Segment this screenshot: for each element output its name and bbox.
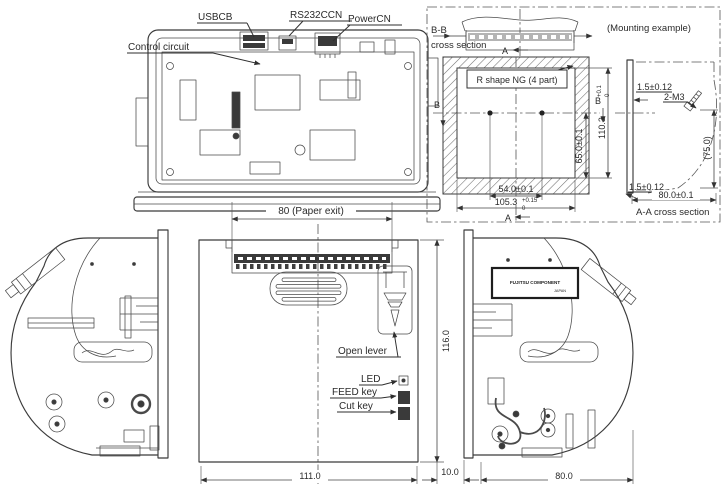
label-powercn: PowerCN xyxy=(348,14,391,25)
open-lever xyxy=(378,266,412,334)
dim-cutout-width-tol-plus: +0.15 xyxy=(522,198,538,204)
label-cut-key: Cut key xyxy=(339,401,373,412)
top-view-board xyxy=(162,52,414,180)
usb-connector xyxy=(240,32,268,50)
section-marker-b-left: B xyxy=(434,100,440,110)
dim-hole-to-bottom: 65.0±0.1 xyxy=(574,129,584,164)
dim-depth-ref: (75.0) xyxy=(702,136,712,160)
mounting-example-caption: (Mounting example) xyxy=(607,23,691,34)
section-bb-label-line2: cross section xyxy=(431,40,486,51)
panel-cutout: R shape NG (4 part) B B 65.0±0.1 110.3 +… xyxy=(433,57,612,223)
dim-cutout-width: 105.3 xyxy=(495,197,518,207)
top-view-inner-frame xyxy=(156,38,420,184)
section-aa-caption: A-A cross section xyxy=(636,207,709,218)
front-view: Open lever LED FEED key Cut key 80 (Pape… xyxy=(199,202,451,484)
cut-key-button xyxy=(398,407,410,420)
dim-width-111: 111.0 xyxy=(299,471,320,481)
nameplate-line2: JAPAN xyxy=(554,289,566,293)
left-view-bezel-plate xyxy=(158,230,168,458)
dim-cutout-height: 110.3 xyxy=(597,117,607,139)
label-led: LED xyxy=(361,374,380,385)
section-bb-view: B-B cross section A xyxy=(431,9,592,57)
label-usbcb: USBCB xyxy=(198,12,233,23)
feed-key-button xyxy=(398,391,410,404)
dim-height-116-text: 116.0 xyxy=(441,330,451,352)
mounting-hole-right xyxy=(539,110,544,115)
dim-cutout-width-tol-minus: 0 xyxy=(522,206,526,212)
label-feed-key: FEED key xyxy=(332,387,377,398)
left-view-details xyxy=(28,263,159,457)
top-view-left-tab xyxy=(136,98,148,146)
section-bb-label-line1: B-B xyxy=(431,25,447,36)
dim-depth-80: 80.0 xyxy=(555,471,573,481)
section-marker-a-top: A xyxy=(502,46,508,56)
dim-panel-thickness: 1.5±0.12 xyxy=(637,82,672,92)
section-marker-a-bottom: A xyxy=(505,213,511,223)
dim-hole-pitch: 54.0±0.1 xyxy=(499,184,534,194)
board-components xyxy=(167,40,412,176)
printer-outline-drawing: USBCB RS232CCN PowerCN Control circuit xyxy=(0,0,726,495)
front-view-callouts: Open lever LED FEED key Cut key xyxy=(330,332,401,412)
mounting-example: B-B cross section A (Mounting example) R… xyxy=(427,7,720,223)
section-aa-view: 2-M3 1.5±0.12 (75.0) 1.5±0.12 80.0±0.1 A… xyxy=(615,60,718,218)
nameplate: FUJITSU COMPONENT JAPAN xyxy=(492,268,578,298)
dim-cutout-height-tol-plus: +0.1 xyxy=(597,84,603,97)
dim-paper-exit-text: 80 (Paper exit) xyxy=(278,206,344,217)
mounting-hole-left xyxy=(487,110,492,115)
label-rs232ccn: RS232CCN xyxy=(290,10,342,21)
left-side-view xyxy=(4,230,168,458)
dim-height-116: 116.0 xyxy=(420,240,451,462)
dim-paper-exit: 80 (Paper exit) xyxy=(232,202,392,252)
right-view-connector xyxy=(581,258,638,307)
dim-gap-10: 10.0 xyxy=(441,467,459,477)
top-view-right-tab xyxy=(428,58,438,106)
vent-grille xyxy=(270,272,347,305)
drawing-canvas: USBCB RS232CCN PowerCN Control circuit xyxy=(0,0,726,495)
bezel-plate-section xyxy=(627,60,633,193)
left-view-body-outline xyxy=(11,238,158,455)
label-2-m3: 2-M3 xyxy=(664,92,685,102)
power-connector xyxy=(315,33,340,58)
bottom-dimensions: 111.0 10.0 80.0 xyxy=(201,430,633,484)
dim-mount-depth: 80.0±0.1 xyxy=(659,190,694,200)
label-open-lever: Open lever xyxy=(338,346,388,357)
nameplate-line1: FUJITSU COMPONENT xyxy=(510,280,560,285)
top-view: USBCB RS232CCN PowerCN Control circuit xyxy=(127,10,440,211)
label-control-circuit: Control circuit xyxy=(128,42,189,53)
left-view-connector xyxy=(4,248,65,300)
control-keys xyxy=(398,376,410,420)
cutout-note: R shape NG (4 part) xyxy=(476,75,557,85)
m3-screw xyxy=(684,90,703,111)
right-side-view: FUJITSU COMPONENT JAPAN xyxy=(464,230,638,458)
right-view-bezel-plate xyxy=(464,230,473,458)
